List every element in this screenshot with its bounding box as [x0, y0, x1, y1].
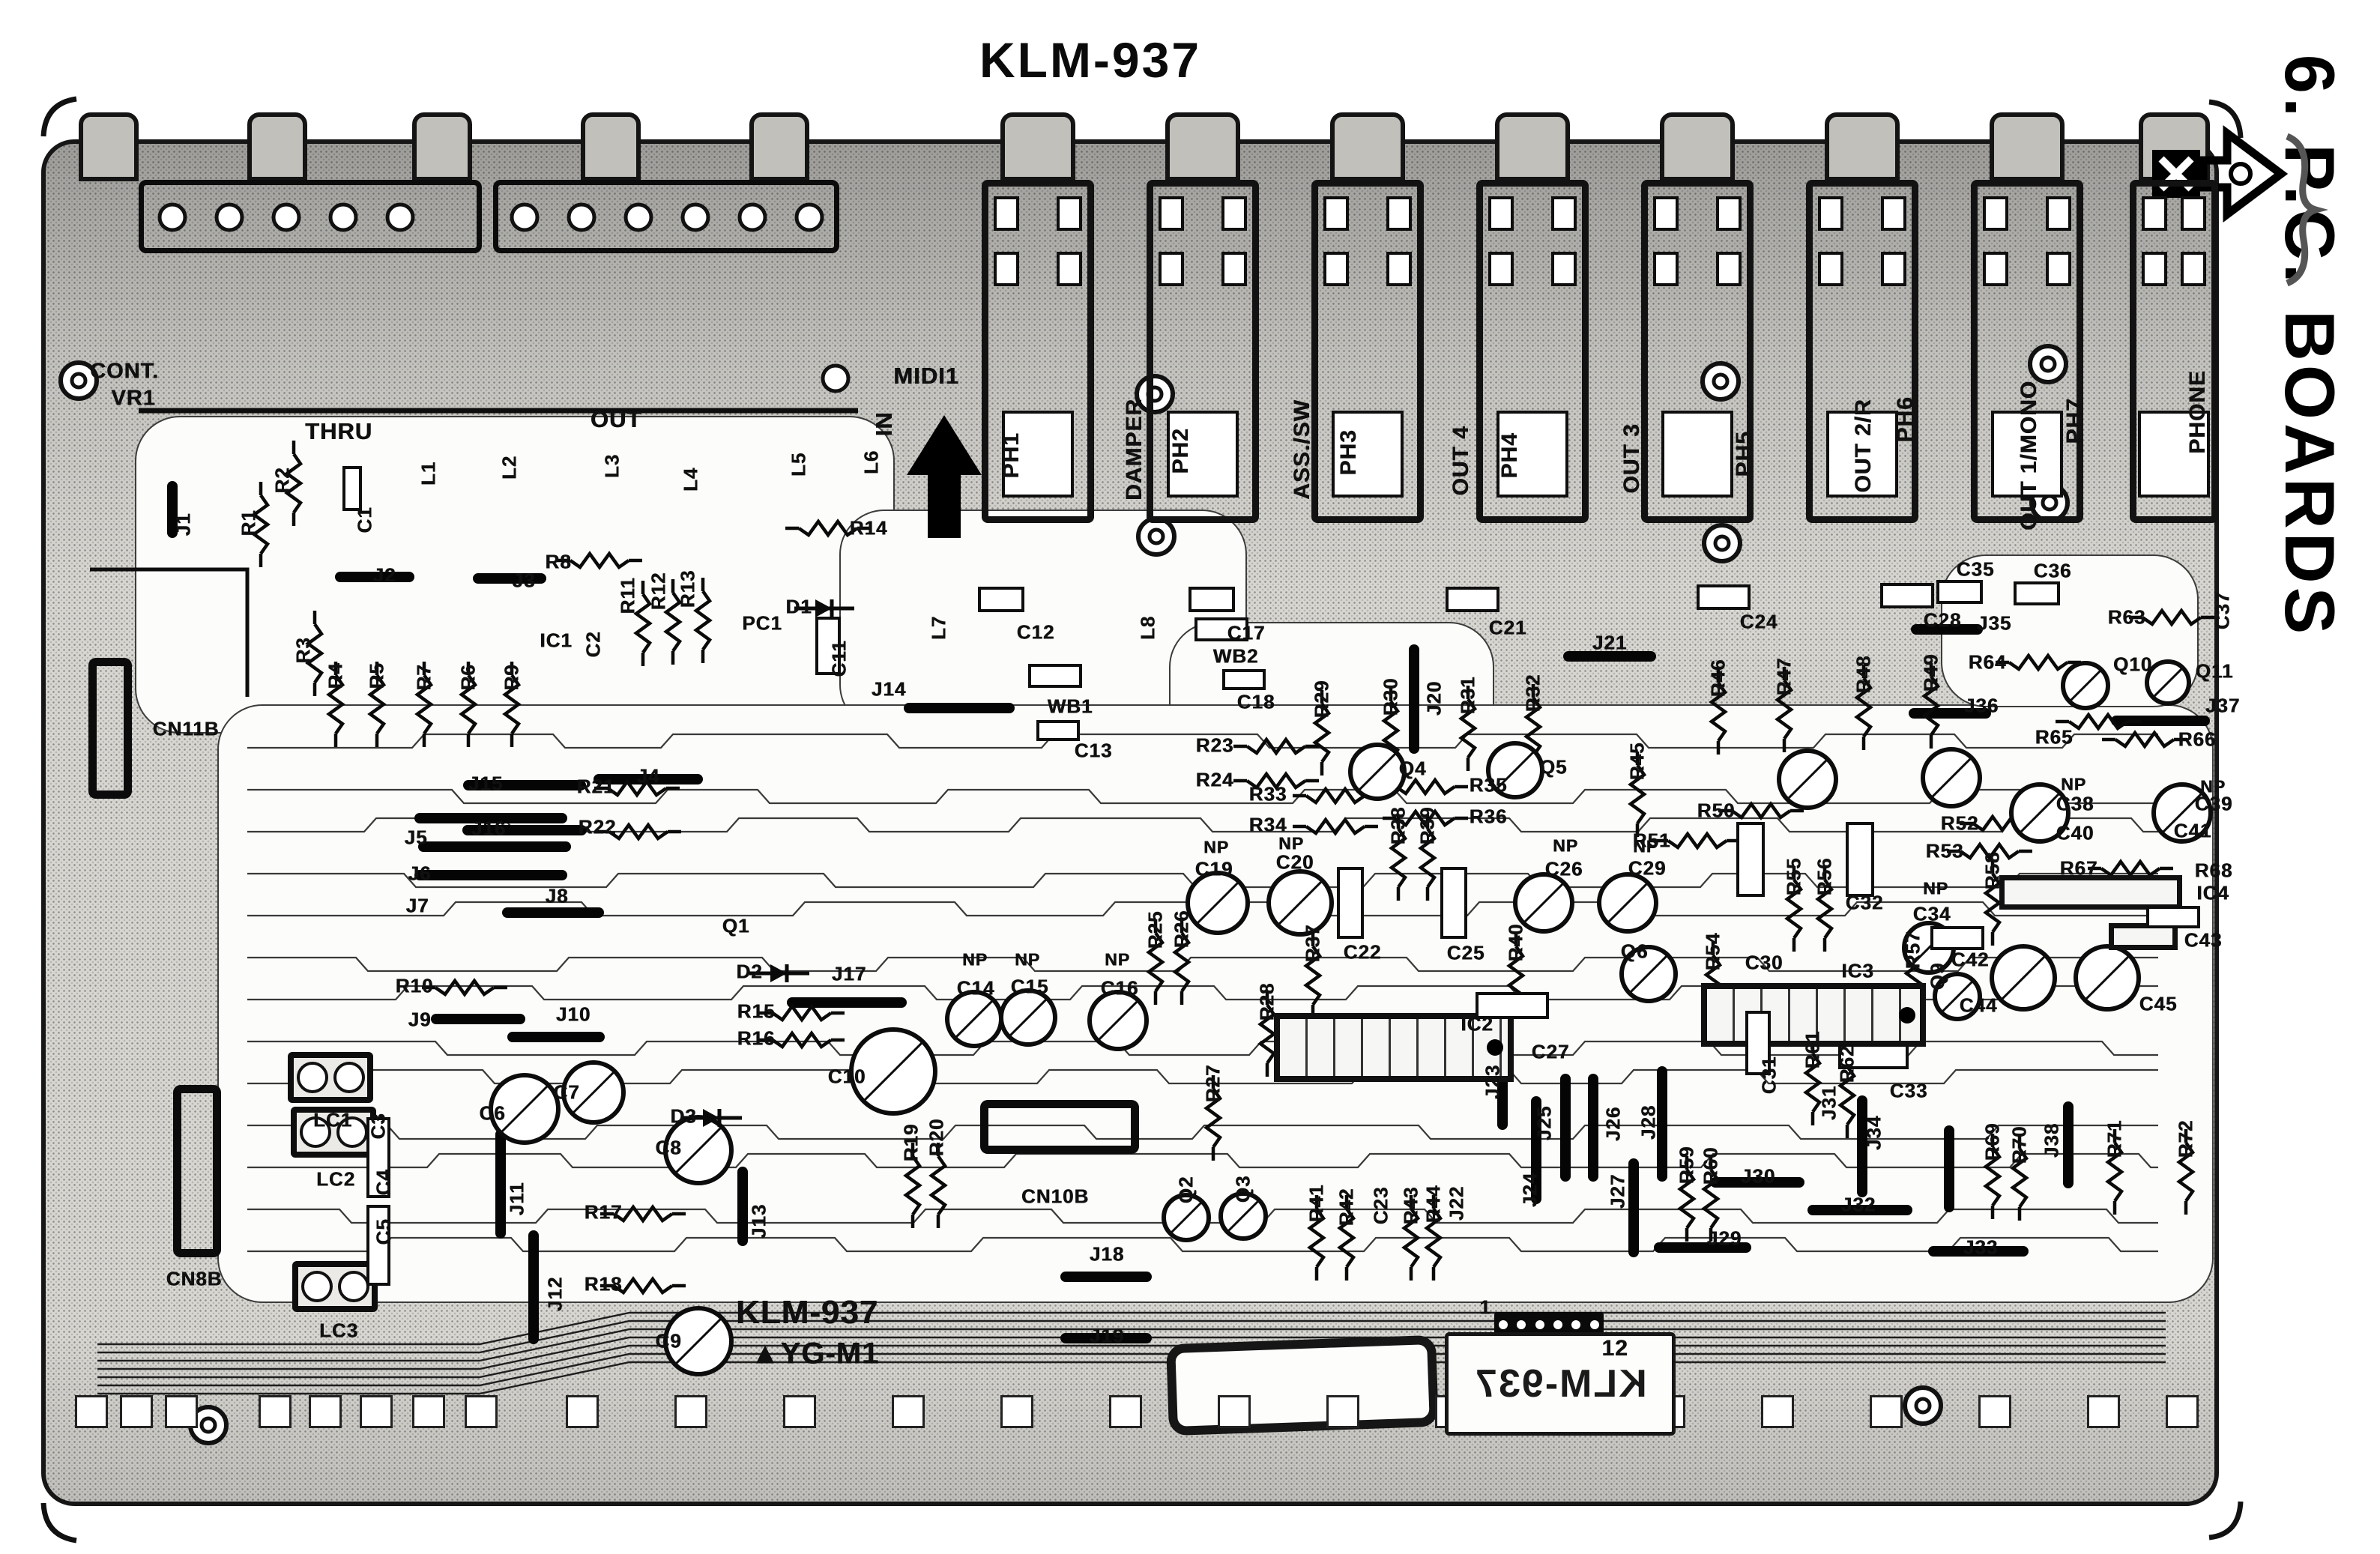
- silk-label-Q3: Q3: [1232, 1176, 1255, 1203]
- silk-label-OUT: OUT: [591, 406, 641, 433]
- capacitor-footprint: [1846, 822, 1874, 897]
- silk-label-C44: C44: [1960, 994, 1998, 1018]
- silk-label-PHONE: PHONE: [2185, 370, 2211, 454]
- solder-pad: [1000, 1395, 1033, 1428]
- silk-label-C8: C8: [655, 1137, 681, 1160]
- solder-pad: [566, 1395, 599, 1428]
- silk-label-R23: R23: [1196, 734, 1234, 758]
- silk-label-OUT2/R: OUT 2/R: [1851, 399, 1876, 492]
- silk-label-R44: R44: [1422, 1185, 1446, 1224]
- silk-label-IC1: IC1: [540, 629, 572, 653]
- capacitor-footprint: [2146, 906, 2200, 928]
- silk-label-C2: C2: [582, 631, 605, 657]
- silk-label-Q5: Q5: [1540, 756, 1568, 779]
- silk-label-C12: C12: [1017, 621, 1055, 644]
- silk-label-NP: NP: [1553, 836, 1578, 856]
- bottom-outline-pad: [1166, 1335, 1439, 1436]
- silk-label-R20: R20: [925, 1119, 949, 1157]
- silk-label-C41: C41: [2174, 820, 2212, 843]
- capacitor-footprint: [1028, 664, 1082, 688]
- silk-label-C7: C7: [553, 1081, 579, 1104]
- silk-label-CN10B: CN10B: [1021, 1185, 1089, 1209]
- lc-coil-footprint: [288, 1052, 373, 1103]
- jack-pad: [1653, 196, 1679, 231]
- silk-label-J17: J17: [832, 963, 866, 986]
- silk-label-R5: R5: [366, 662, 389, 689]
- silk-label-L2: L2: [498, 456, 522, 480]
- silk-label-J13: J13: [748, 1204, 771, 1239]
- silk-label-R70: R70: [2008, 1126, 2032, 1164]
- silk-label-R35: R35: [1470, 774, 1508, 797]
- silk-label-C14: C14: [957, 977, 995, 1000]
- silk-label-R52: R52: [1941, 812, 1979, 835]
- jack-pad: [1159, 252, 1184, 286]
- jack-pad: [2142, 252, 2167, 286]
- silk-label-J3: J3: [513, 569, 536, 593]
- silk-label-C29: C29: [1628, 857, 1667, 880]
- silk-label-IC3: IC3: [1841, 960, 1873, 983]
- silk-label-C28: C28: [1924, 609, 1962, 632]
- capacitor-footprint: [1446, 587, 1499, 612]
- silk-label-R32: R32: [1522, 674, 1545, 713]
- silk-label-VR1: VR1: [111, 387, 155, 411]
- silk-label-R13: R13: [677, 570, 700, 608]
- silk-label-C35: C35: [1957, 558, 1995, 581]
- silk-label-J11: J11: [506, 1182, 529, 1216]
- solder-pad: [783, 1395, 816, 1428]
- silk-label-R24: R24: [1196, 769, 1234, 792]
- silk-label-PC1: PC1: [742, 612, 782, 635]
- silk-label-R57: R57: [1902, 931, 1925, 970]
- silk-label-C3: C3: [367, 1113, 390, 1139]
- silk-label-C39: C39: [2195, 793, 2233, 816]
- solder-pad: [1218, 1395, 1251, 1428]
- silk-label-J38: J38: [2041, 1123, 2064, 1158]
- silk-label-C9: C9: [655, 1330, 681, 1353]
- silk-label-C42: C42: [1951, 949, 1990, 972]
- jack-pad: [1716, 196, 1742, 231]
- solder-pad: [1978, 1395, 2011, 1428]
- silk-label-R56: R56: [1813, 858, 1837, 896]
- silk-label-R39: R39: [1416, 807, 1440, 845]
- silk-label-C30: C30: [1745, 952, 1784, 975]
- jack-pad: [1661, 411, 1733, 498]
- silk-label-PH7: PH7: [2062, 398, 2088, 444]
- silk-label-Q10: Q10: [2113, 653, 2152, 677]
- solder-pad: [892, 1395, 925, 1428]
- silk-label-R67: R67: [2060, 857, 2098, 880]
- silk-label-IC2: IC2: [1461, 1013, 1493, 1036]
- silk-label-R31: R31: [1457, 677, 1480, 715]
- capacitor-footprint: [1189, 587, 1235, 612]
- silk-label-C23: C23: [1370, 1187, 1393, 1225]
- capacitor-footprint: [1440, 867, 1467, 939]
- silk-label-IC4: IC4: [2196, 882, 2229, 905]
- silk-label-NP: NP: [1203, 838, 1229, 858]
- silk-label-J22: J22: [1446, 1186, 1469, 1221]
- jack-pad: [1386, 196, 1412, 231]
- silk-label-R18: R18: [585, 1273, 623, 1296]
- solder-pad: [2087, 1395, 2120, 1428]
- silk-label-J21: J21: [1592, 632, 1627, 655]
- silk-label-L5: L5: [788, 453, 811, 477]
- silk-label-R47: R47: [1773, 658, 1796, 696]
- solder-pad: [165, 1395, 198, 1428]
- silk-label-J30: J30: [1741, 1165, 1775, 1188]
- mirrored-silkscreen-box: KLM-937: [1445, 1332, 1676, 1436]
- silk-label-C6: C6: [479, 1102, 505, 1125]
- silk-label-J1: J1: [172, 513, 196, 536]
- silk-label-J24: J24: [1519, 1173, 1542, 1207]
- capacitor-footprint: [1880, 583, 1934, 608]
- silk-label-R26: R26: [1171, 910, 1194, 949]
- silk-label-J15: J15: [468, 773, 503, 796]
- silk-label-L4: L4: [680, 468, 703, 492]
- silk-label-R4: R4: [324, 662, 348, 689]
- cn10b-connector: [980, 1100, 1139, 1154]
- jack-pad: [1716, 252, 1742, 286]
- silk-label-R8: R8: [545, 551, 571, 574]
- silk-label-12: 12: [1601, 1336, 1628, 1361]
- silk-label-C4: C4: [372, 1169, 396, 1195]
- silk-label-1: 1: [1479, 1296, 1490, 1319]
- silk-label-Q9: Q9: [1927, 963, 1950, 991]
- silk-label-R29: R29: [1311, 680, 1334, 719]
- silk-label-R58: R58: [1981, 852, 2005, 890]
- silk-label-C33: C33: [1890, 1080, 1928, 1103]
- silk-label-C37: C37: [2211, 592, 2235, 630]
- silk-label-R66: R66: [2178, 728, 2217, 752]
- silk-label-D3: D3: [670, 1105, 696, 1128]
- capacitor-footprint: [1930, 926, 1984, 950]
- silk-label-C21: C21: [1489, 617, 1527, 640]
- silk-label-C17: C17: [1227, 622, 1266, 645]
- silk-label-R30: R30: [1380, 678, 1403, 716]
- silk-label-R71: R71: [2103, 1120, 2127, 1158]
- silk-label-CN8B: CN8B: [166, 1268, 223, 1291]
- silk-label-J12: J12: [544, 1277, 567, 1311]
- silk-label-J25: J25: [1533, 1106, 1556, 1140]
- silk-label-C1: C1: [354, 507, 377, 533]
- silk-label-PH4: PH4: [1497, 432, 1523, 478]
- silk-label-R27: R27: [1202, 1065, 1225, 1103]
- silk-label-L1: L1: [417, 462, 441, 486]
- jack-pad: [1488, 196, 1514, 231]
- silk-label-PH1: PH1: [999, 432, 1024, 478]
- silk-label-C13: C13: [1075, 740, 1113, 763]
- silk-label-IN: IN: [871, 412, 898, 437]
- silk-label-J10: J10: [556, 1003, 591, 1027]
- silk-label-R6: R6: [457, 664, 480, 690]
- silk-label-J9: J9: [408, 1009, 432, 1032]
- silk-label-J31: J31: [1818, 1086, 1841, 1120]
- solder-pad: [309, 1395, 342, 1428]
- silk-label-J7: J7: [406, 895, 429, 918]
- jack-pad: [2181, 196, 2206, 231]
- silk-label-R64: R64: [1969, 651, 2007, 674]
- silk-label-R46: R46: [1707, 659, 1730, 698]
- silk-label-R25: R25: [1144, 911, 1168, 949]
- lc-coil-footprint: [292, 1261, 378, 1312]
- silk-label-CONT.: CONT.: [90, 360, 159, 384]
- jack-pad: [1159, 196, 1184, 231]
- capacitor-footprint: [342, 466, 362, 511]
- silk-label-OUT4: OUT 4: [1449, 426, 1474, 495]
- silk-label-J16: J16: [471, 817, 506, 841]
- silk-label-PH2: PH2: [1168, 428, 1194, 474]
- silk-label-J6: J6: [408, 862, 432, 886]
- solder-pad: [120, 1395, 153, 1428]
- silk-label-J28: J28: [1637, 1105, 1661, 1140]
- silk-label-NP: NP: [962, 950, 988, 970]
- silk-label-R21: R21: [577, 776, 615, 799]
- silk-label-LC3: LC3: [319, 1319, 358, 1343]
- ic4-footprint: [1999, 875, 2182, 910]
- silk-label-C25: C25: [1447, 942, 1485, 965]
- cn8b-connector: [173, 1085, 221, 1257]
- silk-label-L7: L7: [928, 616, 951, 640]
- silk-label-PH6: PH6: [1893, 396, 1918, 442]
- silk-label-J23: J23: [1482, 1065, 1505, 1099]
- silk-label-J37: J37: [2205, 695, 2240, 718]
- silk-label-R62: R62: [1836, 1045, 1859, 1083]
- silk-label-R17: R17: [585, 1201, 623, 1224]
- jack-pad: [1881, 196, 1906, 231]
- silk-label-LC1: LC1: [313, 1109, 352, 1132]
- jack-pad: [2142, 196, 2167, 231]
- silk-label-J34: J34: [1863, 1116, 1886, 1150]
- arrow-up-icon: [899, 411, 989, 545]
- silk-label-KLM-937: KLM-937: [736, 1294, 878, 1331]
- silk-label-R50: R50: [1697, 799, 1736, 823]
- silk-label-R63: R63: [2108, 606, 2146, 629]
- silk-label-C31: C31: [1758, 1056, 1781, 1095]
- jack-pad: [1488, 252, 1514, 286]
- silk-label-R72: R72: [2175, 1120, 2198, 1158]
- solder-pad: [1761, 1395, 1794, 1428]
- mirrored-board-name: KLM-937: [1474, 1361, 1647, 1406]
- jack-pad: [1386, 252, 1412, 286]
- silk-label-R49: R49: [1920, 654, 1943, 692]
- silk-label-PH3: PH3: [1336, 429, 1362, 475]
- cn11b-connector: [88, 658, 132, 799]
- silk-label-R68: R68: [2195, 859, 2233, 883]
- silk-label-C19: C19: [1195, 858, 1233, 881]
- silk-label-R48: R48: [1852, 656, 1876, 694]
- silk-label-NP: NP: [1105, 950, 1130, 970]
- silk-label-C45: C45: [2139, 993, 2178, 1016]
- silk-label-R12: R12: [647, 572, 671, 611]
- silk-label-R1: R1: [238, 510, 261, 536]
- silk-label-R45: R45: [1626, 743, 1649, 781]
- solder-pad: [2166, 1395, 2199, 1428]
- silk-label-NP: NP: [2061, 775, 2086, 795]
- silk-label-WB2: WB2: [1213, 645, 1259, 668]
- silk-label-R10: R10: [396, 975, 434, 998]
- silk-label-J26: J26: [1602, 1107, 1625, 1141]
- silk-label-R14: R14: [850, 517, 888, 540]
- silk-label-Q4: Q4: [1399, 758, 1427, 781]
- jack-pad: [1983, 196, 2008, 231]
- silk-label-J2: J2: [373, 564, 396, 587]
- silk-label-R54: R54: [1702, 933, 1725, 971]
- silk-label-C26: C26: [1545, 858, 1583, 881]
- jack-pad: [1057, 196, 1082, 231]
- jack-pad: [994, 252, 1019, 286]
- silk-label-ASS./SW: ASS./SW: [1290, 399, 1315, 500]
- silk-label-R36: R36: [1470, 805, 1508, 829]
- silk-label-R11: R11: [617, 577, 640, 614]
- silk-label-C36: C36: [2034, 560, 2072, 583]
- silk-label-MIDI1: MIDI1: [893, 363, 959, 390]
- capacitor-footprint: [1936, 580, 1983, 604]
- solder-pad: [75, 1395, 108, 1428]
- capacitor-footprint: [978, 587, 1024, 612]
- jack-pad: [1983, 252, 2008, 286]
- scanned-service-manual-page: KLM-937 6. P.C. BOARDS KLM-937 CONT.VR1T…: [0, 0, 2380, 1554]
- silk-label-J33: J33: [1963, 1236, 1998, 1260]
- capacitor-footprint: [1222, 669, 1266, 690]
- silk-label-J27: J27: [1607, 1174, 1630, 1209]
- silk-label-R22: R22: [579, 816, 617, 839]
- solder-pad: [1870, 1395, 1903, 1428]
- silk-label-R69: R69: [1981, 1123, 2005, 1161]
- jack-pad: [1057, 252, 1082, 286]
- jack-pad: [1551, 196, 1577, 231]
- silk-label-NP: NP: [1015, 950, 1040, 970]
- silk-label-C43: C43: [2184, 929, 2223, 952]
- silk-label-L8: L8: [1137, 616, 1160, 640]
- silk-label-R3: R3: [292, 637, 315, 663]
- silk-label-OUT3: OUT 3: [1619, 423, 1645, 493]
- din-footprint: [493, 180, 839, 253]
- capacitor-footprint: [1337, 867, 1364, 939]
- silk-label-R40: R40: [1505, 924, 1528, 962]
- jack-pad: [1881, 252, 1906, 286]
- silk-label-J36: J36: [1964, 695, 1999, 718]
- silk-label-R15: R15: [737, 1000, 776, 1024]
- silk-label-R33: R33: [1249, 783, 1287, 806]
- solder-pad: [674, 1395, 707, 1428]
- silk-label-J29: J29: [1707, 1227, 1742, 1251]
- capacitor-footprint: [1697, 584, 1751, 610]
- silk-label-R38: R38: [1387, 807, 1410, 845]
- silk-label-C5: C5: [372, 1218, 396, 1245]
- solder-pad: [1326, 1395, 1359, 1428]
- jack-pad: [994, 196, 1019, 231]
- silk-label-C15: C15: [1011, 976, 1049, 999]
- silk-label-C34: C34: [1913, 903, 1951, 926]
- silk-label-Q1: Q1: [722, 915, 750, 938]
- silk-label-THRU: THRU: [305, 418, 372, 445]
- capacitor-footprint: [366, 1205, 390, 1286]
- silk-label-C32: C32: [1846, 892, 1884, 915]
- silk-label-R43: R43: [1400, 1187, 1423, 1225]
- jack-pad: [2181, 252, 2206, 286]
- solder-pad: [412, 1395, 445, 1428]
- silk-label-OUT1/MONO: OUT 1/MONO: [2017, 381, 2042, 530]
- silk-label-L6: L6: [860, 450, 884, 474]
- silk-label-R28: R28: [1256, 983, 1279, 1021]
- silk-label-LC2: LC2: [316, 1168, 355, 1191]
- silk-label-R19: R19: [900, 1124, 923, 1162]
- solder-pad: [465, 1395, 498, 1428]
- silk-label-R59: R59: [1676, 1146, 1699, 1185]
- silk-label-C16: C16: [1101, 977, 1139, 1000]
- silk-label-R55: R55: [1783, 858, 1806, 896]
- silk-label-L3: L3: [601, 454, 624, 478]
- silk-label-R37: R37: [1302, 925, 1325, 963]
- silk-label-R53: R53: [1926, 840, 1964, 863]
- solder-pad: [360, 1395, 393, 1428]
- silk-label-C22: C22: [1344, 941, 1382, 964]
- silk-label-C38: C38: [2056, 793, 2094, 816]
- capacitor-footprint: [2014, 581, 2060, 605]
- silk-label-J35: J35: [1977, 612, 2011, 635]
- jack-pad: [1323, 196, 1349, 231]
- silk-label-R51: R51: [1633, 829, 1671, 853]
- silk-label-R42: R42: [1335, 1188, 1359, 1227]
- jack-pad: [1551, 252, 1577, 286]
- silk-label-J4: J4: [637, 765, 660, 788]
- jack-pad: [1818, 196, 1843, 231]
- jack-pad: [1221, 196, 1247, 231]
- jack-pad: [1653, 252, 1679, 286]
- silk-label-R2: R2: [271, 467, 295, 493]
- silk-label-R65: R65: [2035, 726, 2074, 749]
- silk-label-C27: C27: [1532, 1041, 1570, 1064]
- solder-pad: [259, 1395, 292, 1428]
- jack-pad: [2046, 196, 2071, 231]
- silk-label-R7: R7: [413, 664, 436, 690]
- silk-label-WB1: WB1: [1048, 695, 1093, 719]
- silk-label-DAMPER: DAMPER: [1122, 399, 1147, 501]
- jack-pad: [1323, 252, 1349, 286]
- silk-label-J14: J14: [872, 678, 906, 701]
- silk-label-J32: J32: [1841, 1194, 1876, 1217]
- silk-label-D2: D2: [736, 961, 762, 984]
- silk-label-R41: R41: [1305, 1185, 1329, 1223]
- silk-label-C10: C10: [828, 1065, 866, 1089]
- silk-label-J8: J8: [546, 885, 569, 908]
- silk-label-Q11: Q11: [2196, 660, 2234, 683]
- silk-label-J19: J19: [1090, 1325, 1124, 1348]
- silk-label-J18: J18: [1090, 1243, 1124, 1266]
- silk-label-C18: C18: [1237, 691, 1275, 714]
- silk-label-D1: D1: [785, 596, 812, 619]
- capacitor-footprint: [1736, 822, 1765, 897]
- silk-label-R16: R16: [737, 1027, 776, 1050]
- silk-label-NP: NP: [1923, 879, 1948, 899]
- silk-label-R9: R9: [501, 664, 524, 690]
- silk-label-J5: J5: [405, 826, 428, 850]
- silk-label-R60: R60: [1700, 1147, 1723, 1185]
- silk-label-YG-M1: ▲YG-M1: [750, 1337, 879, 1371]
- silk-label-CN11B: CN11B: [153, 718, 220, 741]
- capacitor-footprint: [1036, 720, 1080, 741]
- din-footprint: [139, 180, 482, 253]
- silk-label-C20: C20: [1276, 851, 1314, 874]
- silk-label-C11: C11: [828, 640, 851, 677]
- jack-pad: [1221, 252, 1247, 286]
- jack-pad: [1818, 252, 1843, 286]
- silk-label-PH5: PH5: [1732, 431, 1757, 477]
- silk-label-C40: C40: [2056, 822, 2094, 845]
- silk-label-Q6: Q6: [1621, 940, 1649, 964]
- silk-label-C24: C24: [1740, 611, 1778, 634]
- silk-label-J20: J20: [1423, 681, 1446, 716]
- solder-pad: [1109, 1395, 1142, 1428]
